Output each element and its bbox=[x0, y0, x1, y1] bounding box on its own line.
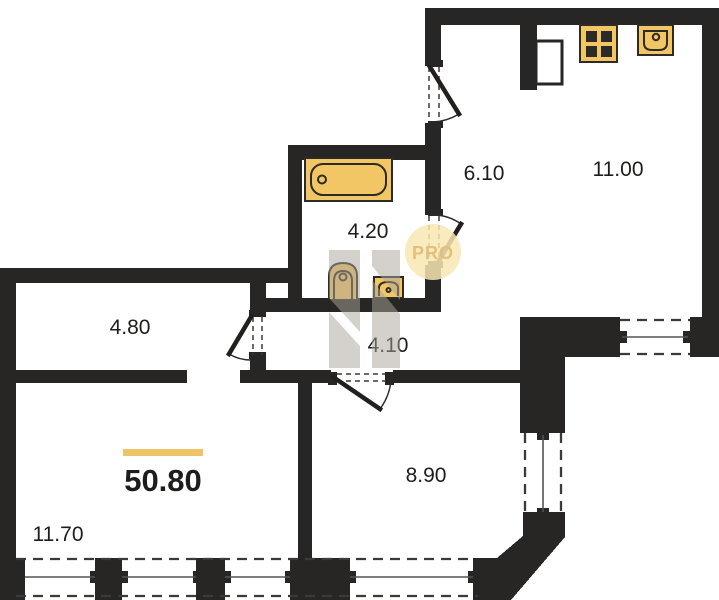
vent-duct bbox=[536, 41, 562, 84]
wall-kitchen-bottom bbox=[520, 317, 620, 357]
wall-bottom-pier-4 bbox=[473, 558, 507, 600]
wall-right bbox=[702, 8, 719, 357]
door-entry-leaf bbox=[430, 67, 459, 114]
room-label-wardrobe: 4.80 bbox=[110, 316, 151, 339]
total-area-accent-bar bbox=[123, 449, 203, 456]
watermark-badge: PRO bbox=[405, 224, 461, 280]
room-label-bathroom: 4.20 bbox=[348, 220, 389, 243]
door-bedroom-arc bbox=[380, 381, 391, 409]
stove-icon bbox=[580, 25, 617, 62]
jamb-wardrobe-bottom bbox=[249, 352, 266, 359]
floor-plan: 6.10 11.00 4.20 4.10 4.80 8.90 11.70 50.… bbox=[0, 0, 719, 600]
door-entry-arc bbox=[433, 114, 459, 122]
door-bedroom-leaf bbox=[333, 377, 380, 409]
pro-badge-text: PRO bbox=[412, 243, 454, 263]
door-wardrobe-arc bbox=[229, 354, 251, 360]
jamb-bedroom-right bbox=[385, 372, 394, 385]
wall-top bbox=[425, 8, 719, 25]
wall-kitchen-bottom-corner bbox=[690, 317, 719, 357]
room-label-entry-hall: 6.10 bbox=[464, 162, 505, 185]
door-wardrobe-opening bbox=[253, 317, 262, 355]
wall-bottom-pier-1 bbox=[95, 558, 122, 600]
wall-wardrobe-top bbox=[0, 268, 300, 283]
wall-left-outer bbox=[0, 268, 16, 600]
total-area-value: 50.80 bbox=[124, 463, 202, 498]
room-label-kitchen-living: 11.00 bbox=[593, 158, 644, 181]
wall-bathroom-left bbox=[288, 145, 302, 312]
wall-bottom-pier-3 bbox=[290, 558, 350, 600]
bathtub-icon bbox=[305, 158, 392, 201]
wall-corridor-bottom-b bbox=[240, 370, 331, 383]
wall-bedroom-right-upper bbox=[520, 357, 565, 433]
door-bedroom-opening bbox=[337, 374, 385, 381]
wall-bathroom-right-upper bbox=[425, 160, 441, 215]
wall-entry-left-upper bbox=[425, 8, 441, 66]
wall-bedroom-left bbox=[298, 383, 312, 558]
door-bathroom-arc bbox=[433, 215, 461, 224]
wall-corridor-bottom-a bbox=[16, 370, 187, 383]
door-wardrobe-leaf bbox=[229, 317, 251, 354]
kitchen-sink-icon bbox=[638, 25, 673, 55]
window-tick bbox=[16, 571, 25, 583]
room-label-living-room: 11.70 bbox=[33, 523, 84, 546]
room-label-bedroom: 8.90 bbox=[406, 464, 447, 487]
wall-kitchen-divider bbox=[520, 25, 537, 90]
total-area: 50.80 bbox=[123, 449, 203, 498]
